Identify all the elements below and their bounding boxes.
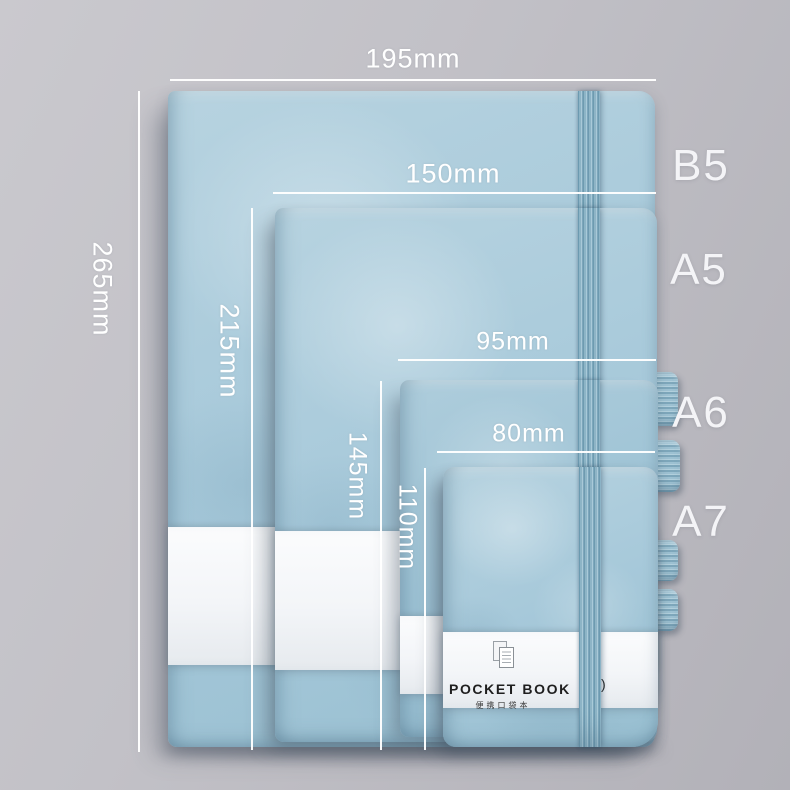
height-label-a7: 110mm bbox=[393, 484, 422, 571]
width-label-a5: 150mm bbox=[405, 159, 500, 190]
size-label-b5: B5 bbox=[672, 141, 730, 191]
width-label-a7: 80mm bbox=[492, 420, 565, 449]
product-photo-stage: POCKET BOOK 便携口袋本 ) 195mm 150mm 95mm 80m… bbox=[0, 0, 790, 790]
size-label-a6: A6 bbox=[672, 388, 730, 438]
size-label-a7: A7 bbox=[672, 497, 730, 547]
pages-icon bbox=[490, 640, 516, 670]
width-dimension-line-a7 bbox=[437, 451, 655, 453]
width-dimension-line-a5 bbox=[273, 192, 656, 194]
width-label-b5: 195mm bbox=[365, 44, 460, 75]
brand-subtitle: 便携口袋本 bbox=[449, 700, 557, 711]
width-dimension-line-a6 bbox=[398, 359, 656, 361]
height-label-b5: 265mm bbox=[87, 241, 118, 336]
width-label-a6: 95mm bbox=[476, 328, 549, 357]
height-dimension-line-a5 bbox=[251, 208, 253, 750]
height-label-a5: 215mm bbox=[214, 303, 245, 398]
brand-band-content: POCKET BOOK 便携口袋本 bbox=[449, 640, 557, 711]
height-dimension-line-a6 bbox=[380, 381, 382, 750]
notebook-a7: POCKET BOOK 便携口袋本 ) bbox=[443, 467, 658, 747]
a7-paper-band: POCKET BOOK 便携口袋本 ) bbox=[443, 632, 658, 708]
size-label-a5: A5 bbox=[670, 245, 728, 295]
a7-elastic-band bbox=[579, 467, 601, 747]
band-partial-text: ) bbox=[601, 676, 606, 692]
height-label-a6: 145mm bbox=[343, 432, 372, 520]
width-dimension-line-b5 bbox=[170, 79, 656, 81]
brand-title: POCKET BOOK bbox=[449, 681, 557, 697]
height-dimension-line-a7 bbox=[424, 468, 426, 750]
height-dimension-line-b5 bbox=[138, 91, 140, 752]
